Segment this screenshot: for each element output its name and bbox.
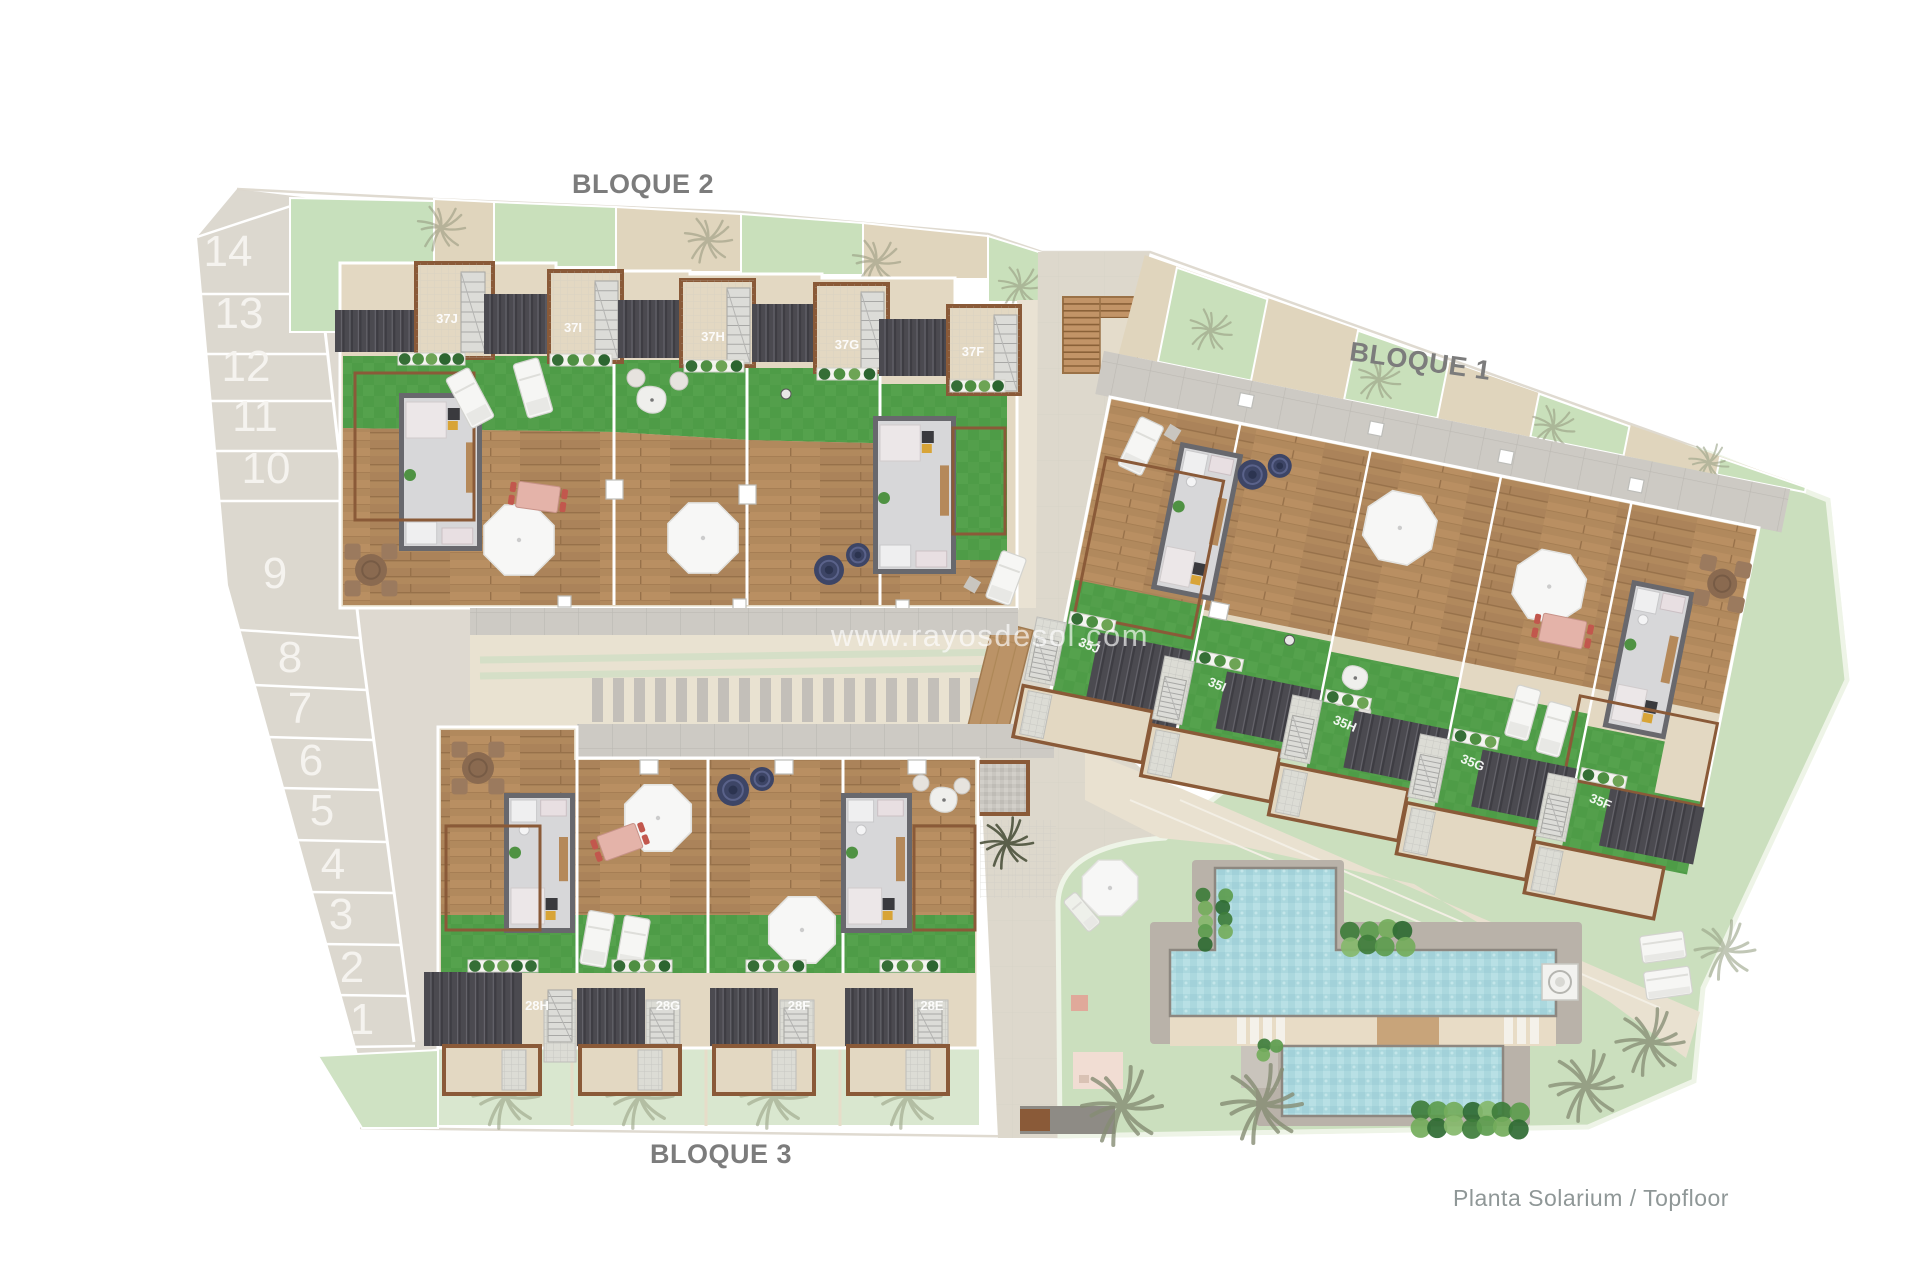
svg-text:5: 5 — [310, 786, 334, 835]
svg-text:2: 2 — [340, 943, 364, 992]
svg-text:28G: 28G — [656, 998, 681, 1013]
svg-text:4: 4 — [321, 840, 345, 889]
svg-text:www.rayosdesol.com: www.rayosdesol.com — [830, 618, 1149, 653]
svg-text:28E: 28E — [920, 998, 943, 1013]
svg-text:14: 14 — [204, 227, 253, 276]
svg-text:11: 11 — [232, 392, 278, 441]
svg-text:6: 6 — [299, 736, 323, 785]
svg-text:1: 1 — [350, 995, 374, 1044]
svg-text:8: 8 — [278, 633, 302, 682]
svg-text:37I: 37I — [564, 320, 582, 335]
svg-text:13: 13 — [215, 289, 264, 338]
svg-text:37F: 37F — [962, 344, 984, 359]
svg-text:BLOQUE 3: BLOQUE 3 — [650, 1139, 792, 1169]
svg-text:7: 7 — [288, 684, 312, 733]
svg-text:10: 10 — [242, 444, 291, 493]
svg-text:28H: 28H — [525, 998, 549, 1013]
svg-text:28F: 28F — [788, 998, 810, 1013]
svg-text:12: 12 — [222, 342, 271, 391]
svg-text:BLOQUE 2: BLOQUE 2 — [572, 169, 714, 199]
svg-text:Planta Solarium / Topfloor: Planta Solarium / Topfloor — [1453, 1185, 1729, 1211]
svg-text:9: 9 — [263, 549, 287, 598]
svg-text:37H: 37H — [701, 329, 725, 344]
svg-text:37G: 37G — [835, 337, 860, 352]
svg-text:3: 3 — [329, 890, 353, 939]
svg-text:37J: 37J — [436, 311, 458, 326]
